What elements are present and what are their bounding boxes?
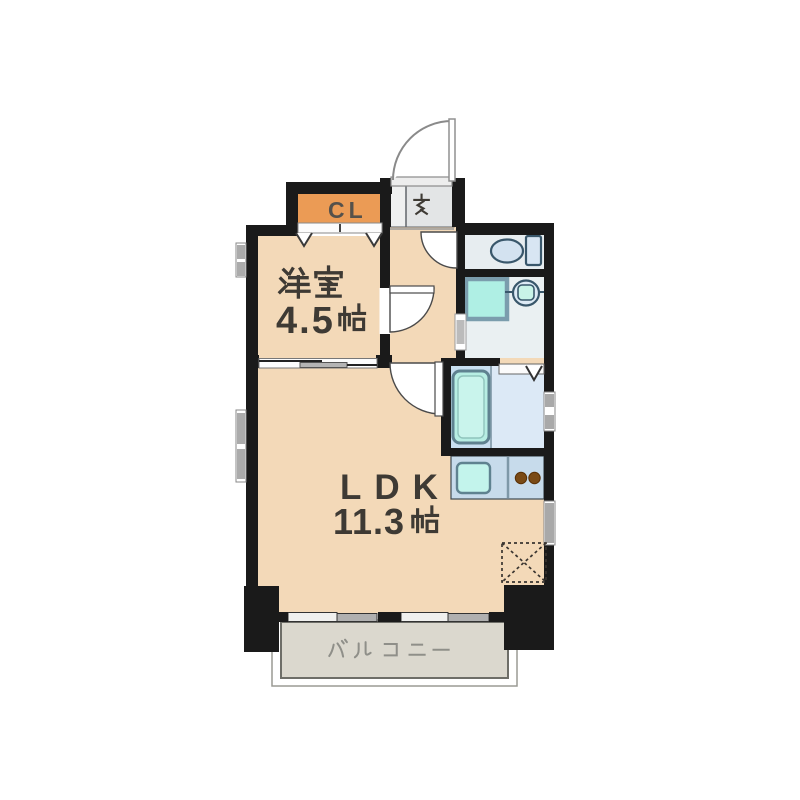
svg-text:4.5: 4.5	[276, 300, 335, 342]
svg-text:CL: CL	[328, 197, 367, 223]
svg-text:11.3: 11.3	[333, 501, 405, 542]
